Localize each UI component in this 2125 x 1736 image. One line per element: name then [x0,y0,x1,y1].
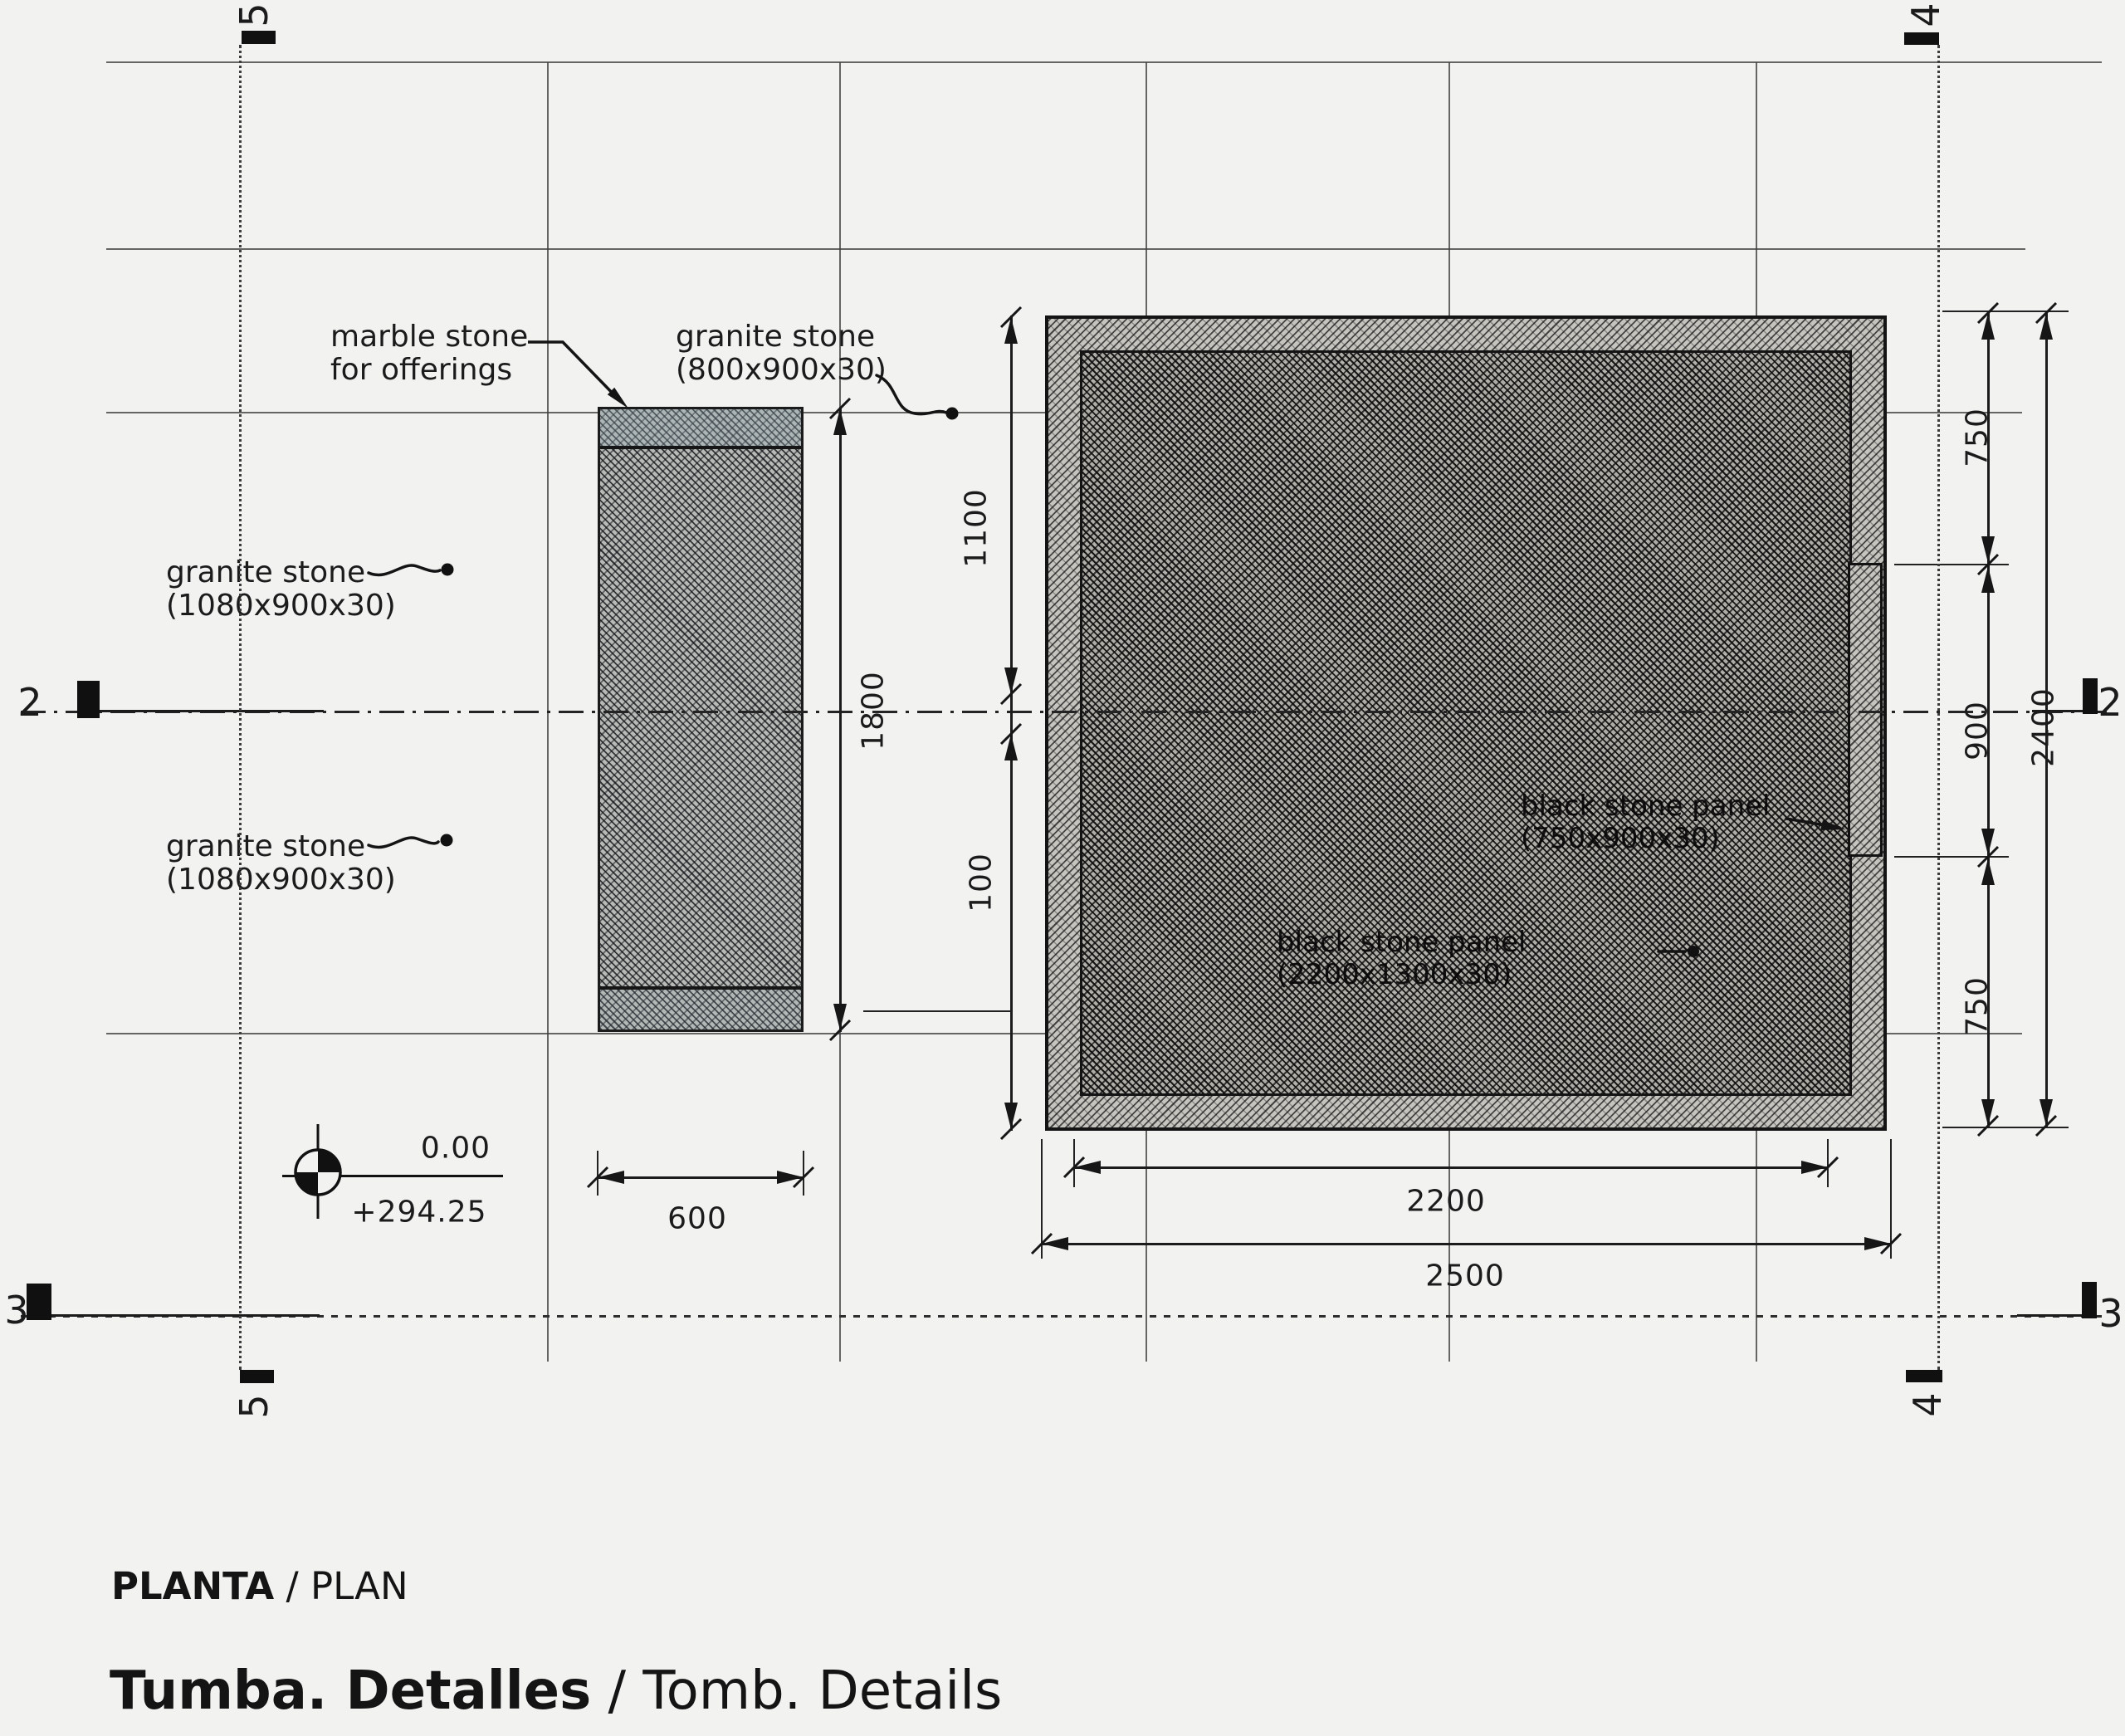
grid-flag-3-left [27,1284,51,1320]
level-underline [282,1175,503,1177]
grid-flag-4-bottom [1906,1370,1942,1382]
level-symbol [296,1124,340,1219]
annotation-panel-main-line1: black stone panel [1277,927,1527,959]
grid-axis-5-line [239,45,242,1370]
dim-line-2500 [1042,1243,1891,1245]
dim-line-2200 [1074,1166,1828,1169]
subtitle-bold: PLANTA [111,1564,274,1608]
grid-flag-3-right [2082,1282,2097,1318]
grid-number-5-bottom: 5 [232,1394,276,1418]
ext-right-top [1942,311,2069,312]
dim-100: 100 [965,853,999,912]
label-granite1080a-line2: (1080x900x30) [166,589,396,623]
axis3-lead-right [2017,1314,2082,1317]
grid-flag-2-left [77,681,100,718]
marble-band-bottom [600,986,801,1029]
dim-1800: 1800 [857,671,891,751]
grid-flag-5-top [242,31,276,44]
ext-right-bottom [1942,1127,2069,1128]
label-granite800-line1: granite stone [676,320,887,354]
grid-number-3-left: 3 [4,1288,28,1333]
annotation-panel-main: black stone panel (2200x1300x30) [1277,927,1527,991]
dim-2400: 2400 [2027,687,2061,767]
dim-2500: 2500 [1425,1259,1505,1293]
dim-line-1100-100 [1010,315,1013,1131]
dim-750-top: 750 [1961,408,1995,467]
title-rest: / Tomb. Details [591,1660,1002,1722]
drawing-subtitle: PLANTA / PLAN [111,1564,408,1608]
annotation-panel-right-line2: (750x900x30) [1521,823,1771,855]
ext-2500-left [1041,1139,1043,1259]
level-elevation: 0.00 [421,1132,491,1166]
marble-band-top [600,409,801,449]
grid-axis-4-line [1937,45,1940,1370]
label-granite-1080-b: granite stone (1080x900x30) [166,830,396,896]
label-marble-line1: marble stone [330,320,528,354]
dim-2200: 2200 [1406,1185,1486,1219]
module-line-h1 [106,61,2102,63]
label-granite1080b-line2: (1080x900x30) [166,863,396,897]
dim-line-600 [598,1176,804,1179]
grid-flag-5-bottom [240,1370,274,1383]
dim-line-1800 [839,407,842,1032]
grid-number-2-left: 2 [17,680,42,725]
ext-2500-right [1890,1139,1892,1259]
annotation-panel-right-line1: black stone panel [1521,790,1771,823]
grid-number-5-top: 5 [232,2,276,27]
label-granite1080a-line1: granite stone [166,556,396,589]
marble-leader [528,342,621,402]
grid-number-2-right: 2 [2098,680,2122,725]
subtitle-rest: / PLAN [274,1564,408,1608]
ext-right-lower [1894,856,2009,858]
label-marble-stone: marble stone for offerings [330,320,528,386]
grid-number-4-top: 4 [1903,2,1948,27]
label-marble-line2: for offerings [330,354,528,387]
tomb-plan-drawing: 5 4 2 2 3 3 5 4 1100 100 1800 750 900 75… [0,0,2125,1736]
label-granite-800: granite stone (800x900x30) [676,320,887,386]
module-line-h2 [106,248,2025,250]
axis3-lead-left [51,1314,320,1317]
grid-number-3-right: 3 [2098,1291,2123,1336]
dim-750-bottom: 750 [1961,976,1995,1036]
label-granite1080b-line1: granite stone [166,830,396,863]
ext-600-left [597,1151,598,1196]
label-granite800-line2: (800x900x30) [676,354,887,387]
side-stone-panel [1848,563,1883,857]
ext-100-tick [863,1010,1011,1012]
module-line-h3-right [1887,412,2022,413]
ext-2200-left [1073,1139,1075,1187]
annotation-panel-main-line2: (2200x1300x30) [1277,959,1527,991]
annotation-panel-right: black stone panel (750x900x30) [1521,790,1771,855]
dim-900: 900 [1961,701,1995,760]
level-datum: +294.25 [351,1196,486,1230]
drawing-title: Tumba. Detalles / Tomb. Details [110,1660,1002,1722]
offering-slab [598,407,804,1032]
label-granite-1080-a: granite stone (1080x900x30) [166,556,396,622]
tomb-slab-outer [1045,315,1887,1131]
ext-right-upper [1894,564,2009,565]
module-line-h4-right [1887,1033,2022,1034]
marble-leader-arrowhead [608,388,628,408]
dim-1100: 1100 [960,488,994,568]
grid-axis-2-centerline [21,711,2107,713]
axis2-lead-left [100,710,324,712]
ext-600-right [803,1151,804,1196]
dim-600: 600 [667,1202,727,1236]
grid-flag-2-right [2083,678,2098,714]
grid-number-4-bottom: 4 [1905,1392,1950,1416]
grid-axis-3-dashline [21,1315,2107,1318]
title-bold: Tumba. Detalles [110,1660,591,1722]
grid-flag-4-top [1904,32,1939,45]
module-line-h3-left [106,412,1045,413]
ext-2200-right [1827,1139,1829,1187]
module-line-h4-left [106,1033,1045,1034]
